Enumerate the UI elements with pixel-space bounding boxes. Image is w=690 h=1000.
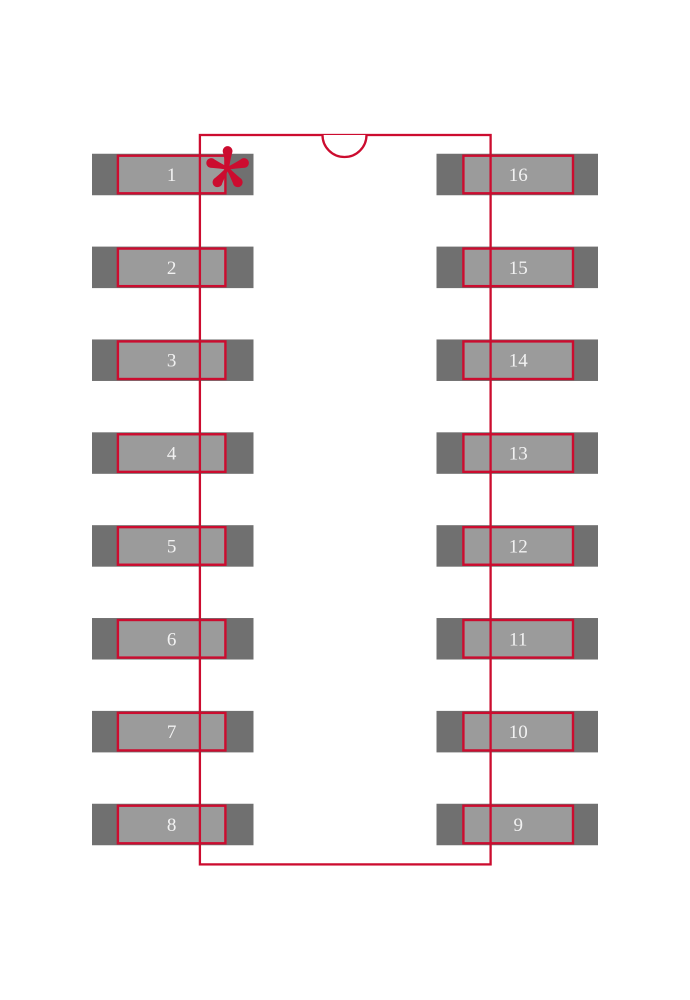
svg-text:12: 12: [509, 536, 528, 557]
svg-text:14: 14: [509, 351, 529, 372]
svg-text:7: 7: [167, 722, 177, 743]
svg-text:9: 9: [513, 815, 523, 836]
svg-text:1: 1: [167, 165, 177, 186]
svg-text:16: 16: [509, 165, 528, 186]
svg-text:5: 5: [167, 536, 177, 557]
svg-text:4: 4: [167, 444, 177, 465]
svg-text:6: 6: [167, 629, 177, 650]
svg-text:15: 15: [509, 258, 528, 279]
svg-text:10: 10: [509, 722, 528, 743]
svg-text:3: 3: [167, 351, 177, 372]
svg-text:11: 11: [509, 629, 527, 650]
svg-text:2: 2: [167, 258, 177, 279]
svg-text:13: 13: [509, 444, 528, 465]
svg-text:8: 8: [167, 815, 177, 836]
